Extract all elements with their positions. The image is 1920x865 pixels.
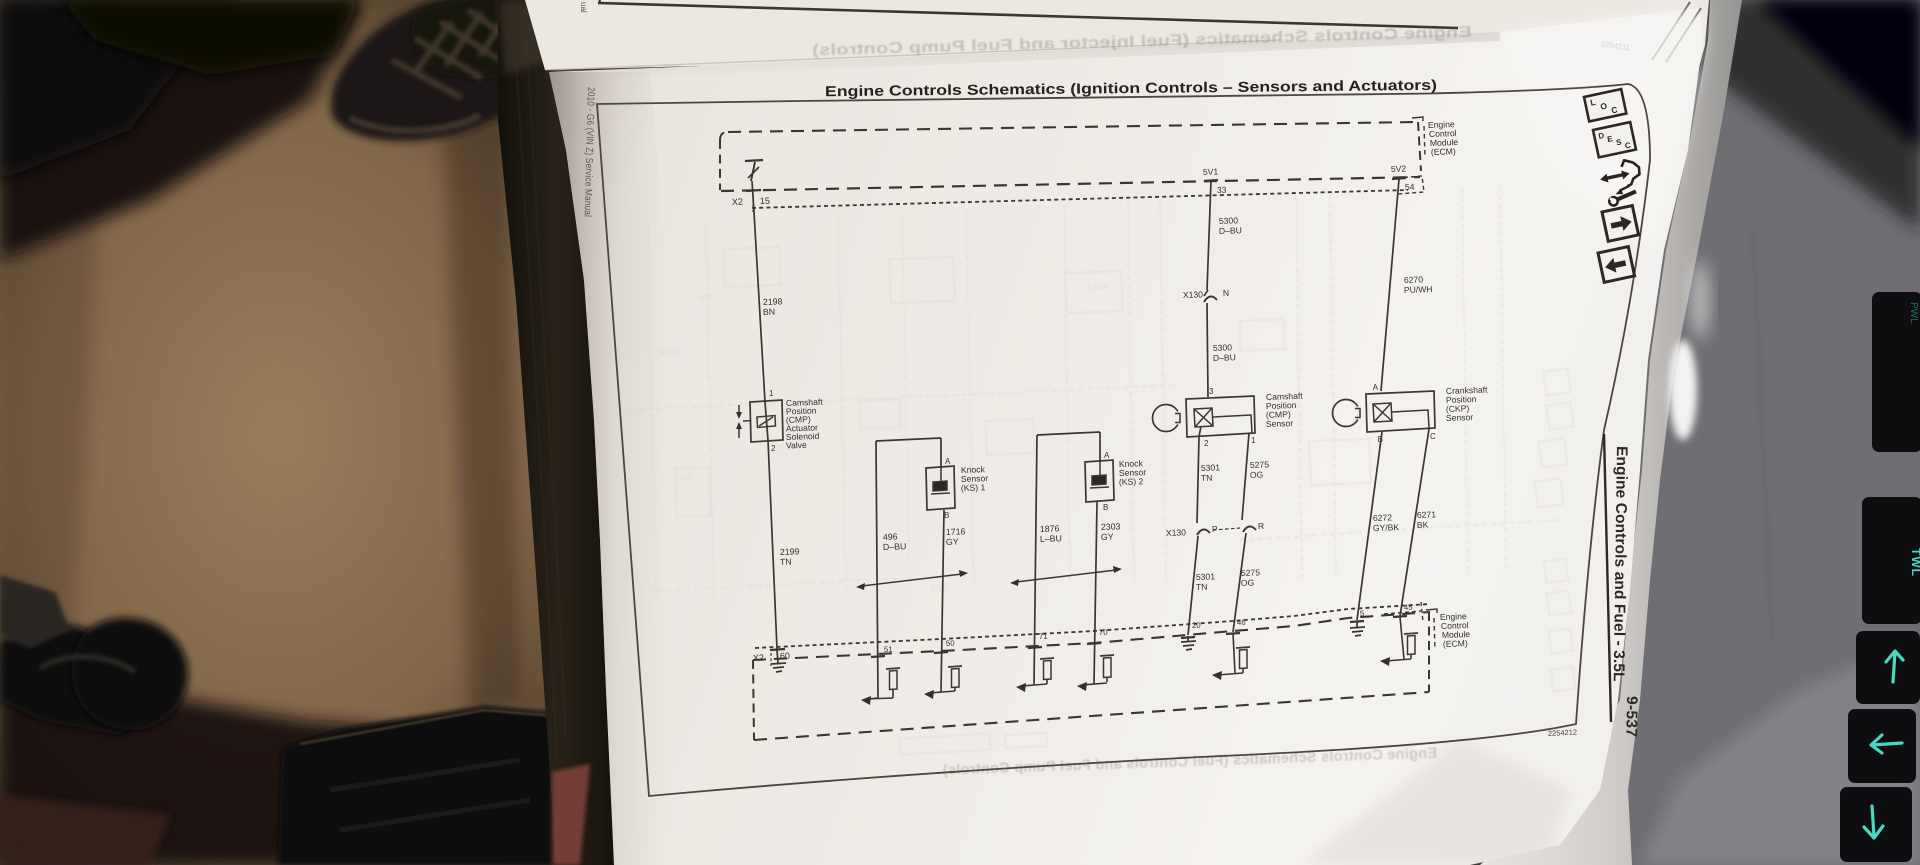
svg-text:Sensor: Sensor <box>1266 418 1294 429</box>
svg-text:Valve: Valve <box>786 440 807 451</box>
svg-text:(ECM): (ECM) <box>1443 638 1468 649</box>
svg-text:TWL: TWL <box>1909 548 1920 577</box>
svg-text:6271: 6271 <box>1417 509 1437 520</box>
svg-text:5V2: 5V2 <box>1391 163 1407 174</box>
svg-text:D–BU: D–BU <box>1219 225 1242 236</box>
svg-text:L40W: L40W <box>1088 282 1110 292</box>
svg-text:1: 1 <box>1251 436 1256 445</box>
svg-text:2199: 2199 <box>780 546 800 557</box>
svg-text:5300: 5300 <box>1213 342 1233 353</box>
svg-text:51: 51 <box>884 645 893 654</box>
svg-text:A: A <box>1104 451 1110 460</box>
svg-text:X130: X130 <box>1166 527 1187 538</box>
svg-text:GY/BK: GY/BK <box>1373 522 1400 533</box>
svg-text:46: 46 <box>1237 618 1246 627</box>
svg-text:1716: 1716 <box>946 526 966 537</box>
svg-text:ual: ual <box>579 2 588 13</box>
svg-text:3: 3 <box>1209 387 1214 396</box>
svg-text:6270: 6270 <box>1404 274 1424 285</box>
svg-text:5301: 5301 <box>1196 571 1216 582</box>
svg-text:OG: OG <box>1250 470 1264 480</box>
svg-text:5301: 5301 <box>1201 462 1221 473</box>
svg-text:R: R <box>1258 521 1265 531</box>
svg-text:496: 496 <box>883 531 898 542</box>
svg-text:D–BU: D–BU <box>883 541 907 552</box>
svg-text:PU/WH: PU/WH <box>1404 284 1433 295</box>
svg-text:2: 2 <box>1204 439 1209 448</box>
svg-text:TN: TN <box>1196 582 1208 592</box>
svg-text:5275: 5275 <box>1250 459 1270 470</box>
svg-text:(ECM): (ECM) <box>1431 146 1456 157</box>
svg-text:70: 70 <box>1099 628 1109 637</box>
svg-text:X2: X2 <box>732 197 743 207</box>
svg-text:2: 2 <box>771 444 776 453</box>
svg-text:15: 15 <box>760 196 770 206</box>
svg-text:N: N <box>1223 288 1230 298</box>
svg-text:115: 115 <box>680 473 694 482</box>
svg-text:(KS) 2: (KS) 2 <box>1119 476 1144 487</box>
svg-text:54: 54 <box>1405 182 1415 192</box>
svg-text:A: A <box>1373 383 1379 392</box>
svg-text:X2: X2 <box>753 653 764 663</box>
svg-text:B: B <box>1103 503 1108 512</box>
svg-text:5275: 5275 <box>1241 567 1261 578</box>
svg-text:510: 510 <box>700 293 714 302</box>
svg-text:20: 20 <box>1192 621 1202 630</box>
svg-text:5V1: 5V1 <box>1203 166 1219 177</box>
svg-text:TN: TN <box>780 557 792 567</box>
svg-text:X130: X130 <box>1183 289 1204 300</box>
svg-text:P: P <box>1212 524 1218 534</box>
svg-text:BN: BN <box>763 307 776 317</box>
svg-text:Sensor: Sensor <box>1446 412 1474 423</box>
svg-text:D–BU: D–BU <box>1213 352 1236 363</box>
svg-text:2303: 2303 <box>1101 521 1121 532</box>
svg-text:GY: GY <box>1101 532 1114 542</box>
svg-text:2198: 2198 <box>763 296 783 307</box>
svg-text:2010: 2010 <box>930 582 949 592</box>
svg-text:1876: 1876 <box>1040 523 1060 534</box>
svg-text:(KS) 1: (KS) 1 <box>961 482 986 493</box>
svg-text:Engine Controls and Fuel - 3.5: Engine Controls and Fuel - 3.5L <box>1610 446 1630 682</box>
svg-text:GY: GY <box>946 537 959 547</box>
svg-text:9-537: 9-537 <box>1622 696 1640 737</box>
svg-text:C: C <box>1430 432 1436 441</box>
svg-text:TN: TN <box>1201 473 1213 483</box>
svg-text:OG: OG <box>1241 578 1255 588</box>
svg-text:5300: 5300 <box>1219 215 1239 226</box>
svg-text:33: 33 <box>1217 185 1227 195</box>
svg-text:6272: 6272 <box>1373 512 1393 523</box>
svg-text:2254212: 2254212 <box>1548 727 1578 738</box>
svg-text:50: 50 <box>946 639 956 648</box>
svg-text:1: 1 <box>769 389 774 398</box>
svg-text:BK: BK <box>1417 520 1429 530</box>
svg-text:A: A <box>945 457 951 466</box>
svg-text:45: 45 <box>1404 603 1414 612</box>
svg-text:L–BU: L–BU <box>1040 533 1062 544</box>
svg-text:5030: 5030 <box>660 347 679 357</box>
svg-text:71: 71 <box>1039 632 1048 641</box>
svg-text:PWL: PWL <box>1908 302 1919 324</box>
